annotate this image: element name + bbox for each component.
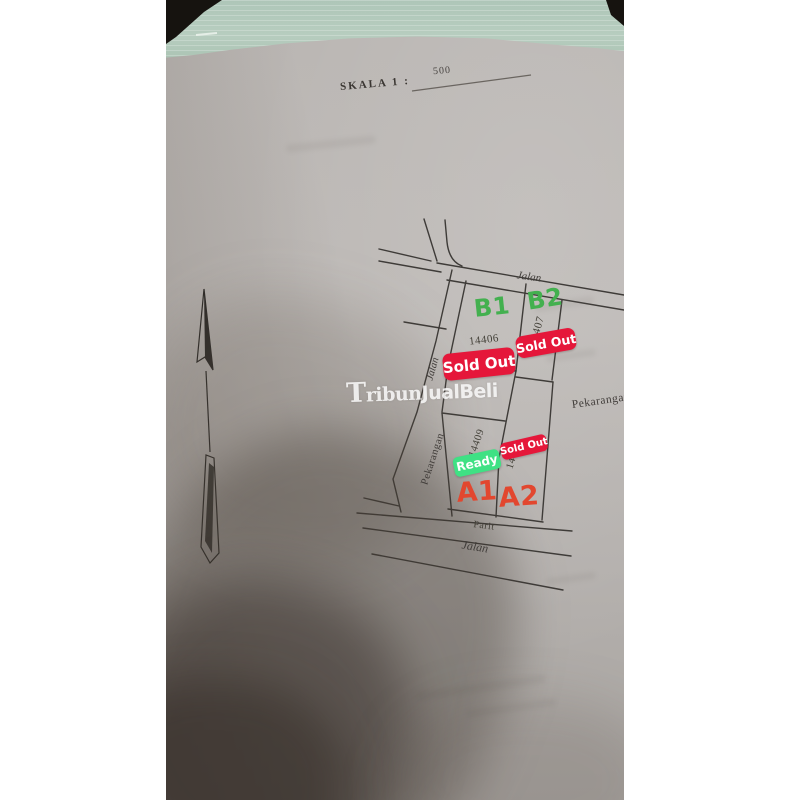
padded-canvas: 2 (0, 0, 800, 800)
plot-id-a1: A1 (456, 475, 499, 509)
document-photo: 2 (166, 0, 624, 800)
photo-corner-black-right (606, 0, 624, 26)
left-branch-upper-edge (379, 249, 431, 261)
watermark-jualbeli: JualBeli (421, 380, 498, 405)
plot-b2-bottom-edge (516, 377, 553, 382)
plot-id-b1: B1 (473, 291, 512, 323)
left-branch-lower-edge (379, 261, 441, 272)
plot-id-b2: B2 (525, 282, 565, 315)
photo-corner-black-left (166, 0, 222, 44)
plot-a1-top-edge (442, 413, 505, 421)
scale-value: 500 (433, 65, 452, 78)
road-stub-left-edge (424, 219, 437, 261)
scale-underline (412, 75, 531, 91)
plot-id-a2: A2 (498, 480, 541, 514)
road-stub-right-edge (445, 220, 462, 266)
watermark-tribun: Tribun (346, 383, 422, 408)
page-glint (196, 33, 217, 35)
watermark: TribunJualBeli (346, 373, 499, 409)
